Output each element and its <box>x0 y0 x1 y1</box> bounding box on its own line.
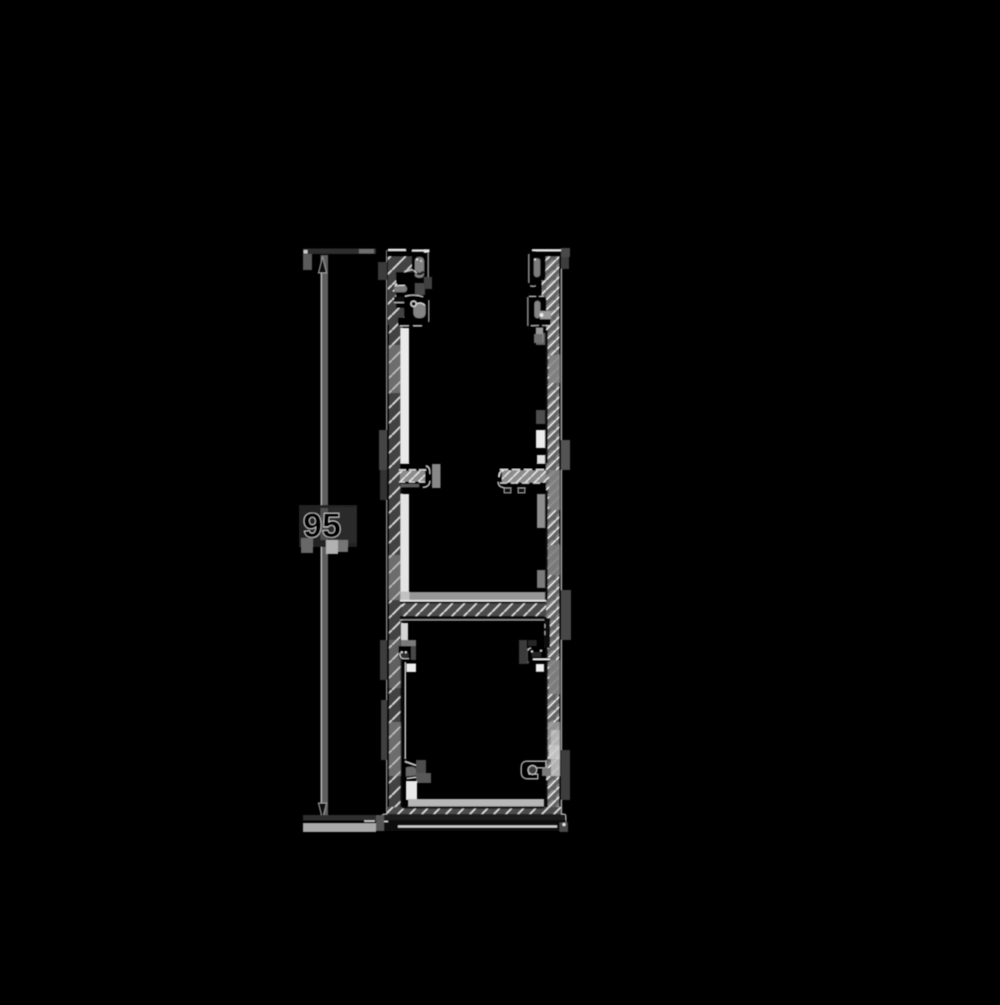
svg-text:95: 95 <box>303 507 341 545</box>
